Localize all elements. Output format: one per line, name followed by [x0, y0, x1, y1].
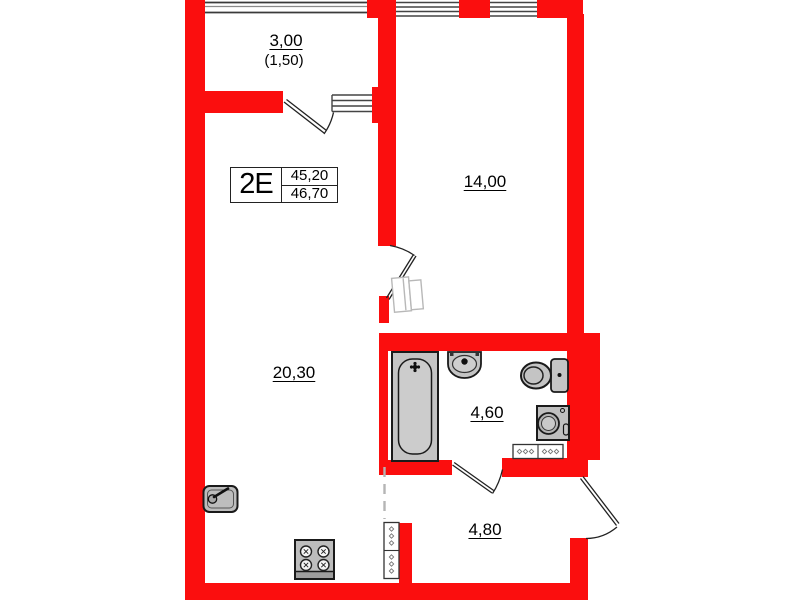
hallway-area-label: 4,80: [435, 520, 535, 540]
balcony-secondary-area-label: (1,50): [234, 52, 334, 69]
unit-area-total: 46,70: [282, 186, 337, 203]
balcony-area-label: 3,00: [236, 31, 336, 51]
entrance-door-swing: [581, 477, 620, 539]
unit-code: 2E: [231, 168, 282, 202]
unit-area-living: 45,20: [282, 168, 337, 186]
ventilation-grille-hallway: [513, 445, 563, 459]
stove: [295, 540, 334, 579]
balcony-door-swing: [284, 100, 334, 135]
bedroom-window-left: [396, 3, 459, 17]
bathtub: [392, 352, 438, 461]
balcony-glazing-window: [205, 3, 367, 13]
living-kitchen-area-label: 20,30: [244, 363, 344, 383]
unit-info-table: 2E 45,20 46,70: [230, 167, 338, 203]
bathroom-area-label: 4,60: [437, 403, 537, 423]
toilet: [521, 359, 568, 392]
bathroom-door-swing: [453, 463, 503, 494]
balcony-side-window: [332, 95, 372, 112]
plan-linework: [0, 0, 800, 600]
floor-plan: 3,00 (1,50) 14,00 20,30 4,60 4,80 2E 45,…: [0, 0, 800, 600]
bedroom-area-label: 14,00: [435, 172, 535, 192]
kitchen-sink: [204, 486, 238, 512]
washbasin: [448, 352, 481, 378]
bedroom-window-right: [490, 3, 537, 17]
washing-machine: [537, 406, 569, 440]
ventilation-grille-kitchen: [384, 523, 399, 579]
wardrobe-outline: [392, 276, 424, 312]
